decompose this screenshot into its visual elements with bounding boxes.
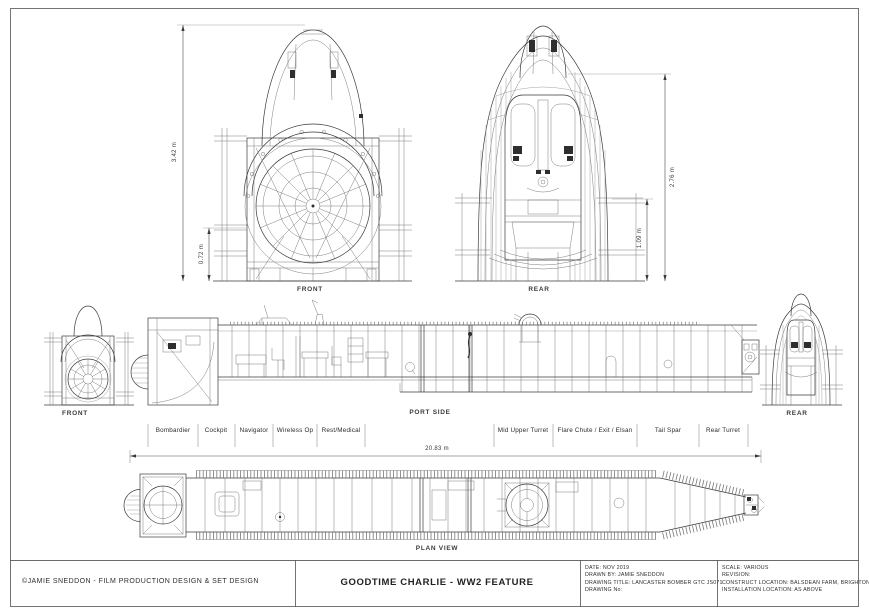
compartment-bombardier: Bombardier bbox=[156, 427, 191, 434]
compartment-navigator: Navigator bbox=[240, 427, 269, 434]
compartment-tail-spar: Tail Spar bbox=[655, 427, 681, 434]
rear-section-view-drawing bbox=[455, 26, 645, 281]
compartment-cockpit: Cockpit bbox=[205, 427, 227, 434]
info-installation-location: INSTALLATION LOCATION: AS ABOVE bbox=[722, 587, 869, 594]
compartment-mid-upper-turret: Mid Upper Turret bbox=[498, 427, 548, 434]
rear-section-label: REAR bbox=[528, 286, 549, 293]
info-revision: REVISION: bbox=[722, 572, 869, 579]
project-title: GOODTIME CHARLIE - WW2 FEATURE bbox=[340, 577, 533, 588]
front-section-view-drawing bbox=[213, 30, 412, 281]
port-side-elevation-drawing bbox=[131, 300, 759, 405]
compartment-flare-chute: Flare Chute / Exit / Elsan bbox=[558, 427, 633, 434]
front-elevation-small-drawing bbox=[44, 306, 134, 405]
port-side-label: PORT SIDE bbox=[409, 409, 450, 416]
info-drawing-no: DRAWING No: bbox=[585, 587, 723, 594]
dimension-lines-sections bbox=[177, 25, 671, 281]
title-block-info-left: DATE: NOV 2019 DRAWN BY: JAMIE SNEDDON D… bbox=[585, 565, 723, 594]
info-construct-location: CONSTRUCT LOCATION: BALSDEAN FARM, BRIGH… bbox=[722, 580, 869, 587]
plan-view-drawing bbox=[124, 471, 764, 540]
drawing-sheet: FRONT REAR FRONT PORT SIDE REAR PLAN VIE… bbox=[0, 0, 869, 615]
sheet-border bbox=[11, 9, 859, 607]
copyright-text: ©JAMIE SNEDDON - FILM PRODUCTION DESIGN … bbox=[22, 578, 259, 585]
dim-rear-total-height: 2.76 m bbox=[670, 167, 676, 187]
info-drawn-by: DRAWN BY: JAMIE SNEDDON bbox=[585, 572, 723, 579]
info-date: DATE: NOV 2019 bbox=[585, 565, 723, 572]
dim-front-floor-height: 0.72 m bbox=[199, 244, 205, 264]
plan-view-label: PLAN VIEW bbox=[416, 545, 458, 552]
title-block-info-right: SCALE: VARIOUS REVISION: CONSTRUCT LOCAT… bbox=[722, 565, 869, 594]
compartment-rest-medical: Rest/Medical bbox=[322, 427, 361, 434]
blueprint-linework bbox=[0, 0, 869, 615]
info-scale: SCALE: VARIOUS bbox=[722, 565, 869, 572]
front-section-label: FRONT bbox=[297, 286, 323, 293]
dim-rear-floor-height: 1.09 m bbox=[637, 228, 643, 248]
dim-fuselage-length: 20.83 m bbox=[425, 446, 449, 452]
rear-small-label: REAR bbox=[786, 410, 807, 417]
info-drawing-title: DRAWING TITLE: LANCASTER BOMBER GTC JS07… bbox=[585, 580, 723, 587]
dim-front-total-height: 3.42 m bbox=[172, 142, 178, 162]
compartment-wireless-op: Wireless Op bbox=[277, 427, 314, 434]
front-small-label: FRONT bbox=[62, 410, 88, 417]
rear-elevation-small-drawing bbox=[760, 294, 843, 405]
compartment-rear-turret: Rear Turret bbox=[706, 427, 740, 434]
